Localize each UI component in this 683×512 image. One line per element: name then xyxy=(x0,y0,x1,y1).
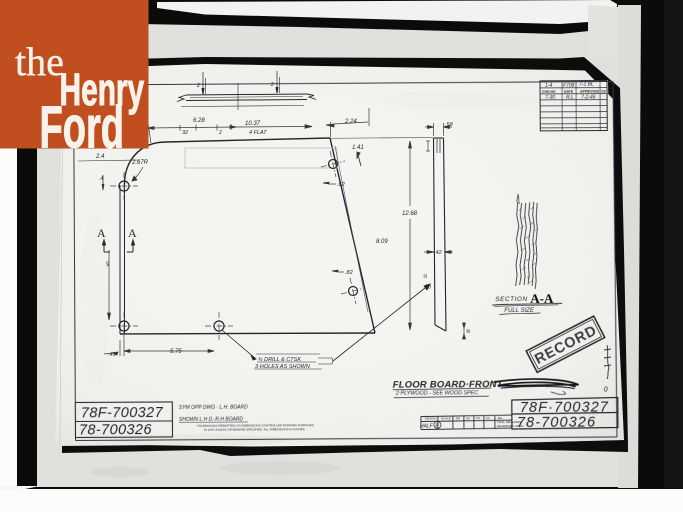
svg-text:DESIGN: DESIGN xyxy=(425,416,437,420)
svg-text:.58: .58 xyxy=(445,122,454,128)
svg-text:78F·700327: 78F·700327 xyxy=(520,399,609,415)
svg-text:CK: CK xyxy=(601,90,606,94)
svg-text:78F-700327: 78F-700327 xyxy=(81,405,164,421)
svg-text:2.67R: 2.67R xyxy=(131,160,149,166)
svg-text:A: A xyxy=(97,226,106,240)
svg-text:7-30: 7-30 xyxy=(545,95,555,101)
svg-text:8.09: 8.09 xyxy=(376,239,388,245)
svg-text:7-2-46: 7-2-46 xyxy=(581,95,596,101)
svg-text:.92: .92 xyxy=(181,130,188,136)
svg-text:6.28: 6.28 xyxy=(193,118,205,124)
svg-text:DATE: DATE xyxy=(564,90,574,94)
svg-text:the: the xyxy=(15,39,64,84)
svg-text:10.37: 10.37 xyxy=(245,121,261,127)
svg-text:HALF: HALF xyxy=(420,423,434,429)
svg-text:5.75: 5.75 xyxy=(170,349,182,355)
svg-text:4 FLAT: 4 FLAT xyxy=(249,130,267,136)
svg-text:2: 2 xyxy=(196,83,200,89)
svg-text:0: 0 xyxy=(604,387,608,394)
svg-text:2·PLYWOOD - SEE WOOD SPEC: 2·PLYWOOD - SEE WOOD SPEC xyxy=(395,390,479,396)
svg-text:IN 1/64 UNLESS OTHERWISE SPECI: IN 1/64 UNLESS OTHERWISE SPECIFIED. ALL … xyxy=(204,427,305,432)
svg-text:.4: .4 xyxy=(99,176,103,182)
svg-text:2: 2 xyxy=(218,130,222,136)
svg-text:(4): (4) xyxy=(425,284,431,290)
svg-text:CK: CK xyxy=(466,416,470,420)
svg-text:1.41: 1.41 xyxy=(352,145,364,151)
svg-text:SCALE: SCALE xyxy=(441,416,451,420)
svg-text:78-700326: 78-700326 xyxy=(517,415,596,431)
svg-text:F708: F708 xyxy=(563,83,575,89)
svg-text:2.24: 2.24 xyxy=(344,119,357,125)
svg-text:.82: .82 xyxy=(345,270,353,276)
svg-text:.42: .42 xyxy=(434,250,442,256)
svg-text:12.68: 12.68 xyxy=(402,211,418,217)
svg-text:1-4: 1-4 xyxy=(545,83,552,89)
svg-text:¼: ¼ xyxy=(423,274,427,280)
svg-text:.43: .43 xyxy=(108,352,117,358)
svg-text:8: 8 xyxy=(435,423,438,429)
svg-text:SYM OPP DWG · L.H. BOARD: SYM OPP DWG · L.H. BOARD xyxy=(179,405,248,411)
svg-text:R.L: R.L xyxy=(566,95,574,101)
svg-text:CA: CA xyxy=(486,416,490,420)
svg-text:A: A xyxy=(128,226,137,240)
svg-text:78-700326: 78-700326 xyxy=(79,422,153,438)
svg-text:APPROVED: APPROVED xyxy=(580,90,600,94)
svg-text:2: 2 xyxy=(270,82,274,88)
svg-text:Ford: Ford xyxy=(40,94,125,161)
svg-text:SECTION: SECTION xyxy=(495,296,527,303)
svg-text:.62: .62 xyxy=(337,182,345,188)
svg-text:CHG.NO: CHG.NO xyxy=(542,90,556,94)
svg-text:7-1 BL: 7-1 BL xyxy=(579,82,594,88)
